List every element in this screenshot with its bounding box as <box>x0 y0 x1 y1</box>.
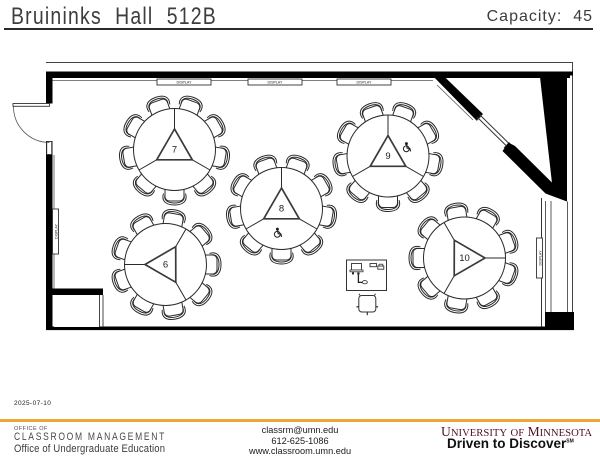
svg-text:DISPLAY: DISPLAY <box>268 81 284 85</box>
svg-text:6: 6 <box>163 260 168 271</box>
svg-text:DISPLAY: DISPLAY <box>538 250 542 266</box>
svg-text:DISPLAY: DISPLAY <box>54 223 58 239</box>
svg-text:DISPLAY: DISPLAY <box>357 81 373 85</box>
svg-text:8: 8 <box>279 204 284 215</box>
svg-text:9: 9 <box>385 151 390 162</box>
svg-text:10: 10 <box>459 253 470 264</box>
svg-text:DISPLAY: DISPLAY <box>177 81 193 85</box>
svg-text:7: 7 <box>172 145 177 156</box>
